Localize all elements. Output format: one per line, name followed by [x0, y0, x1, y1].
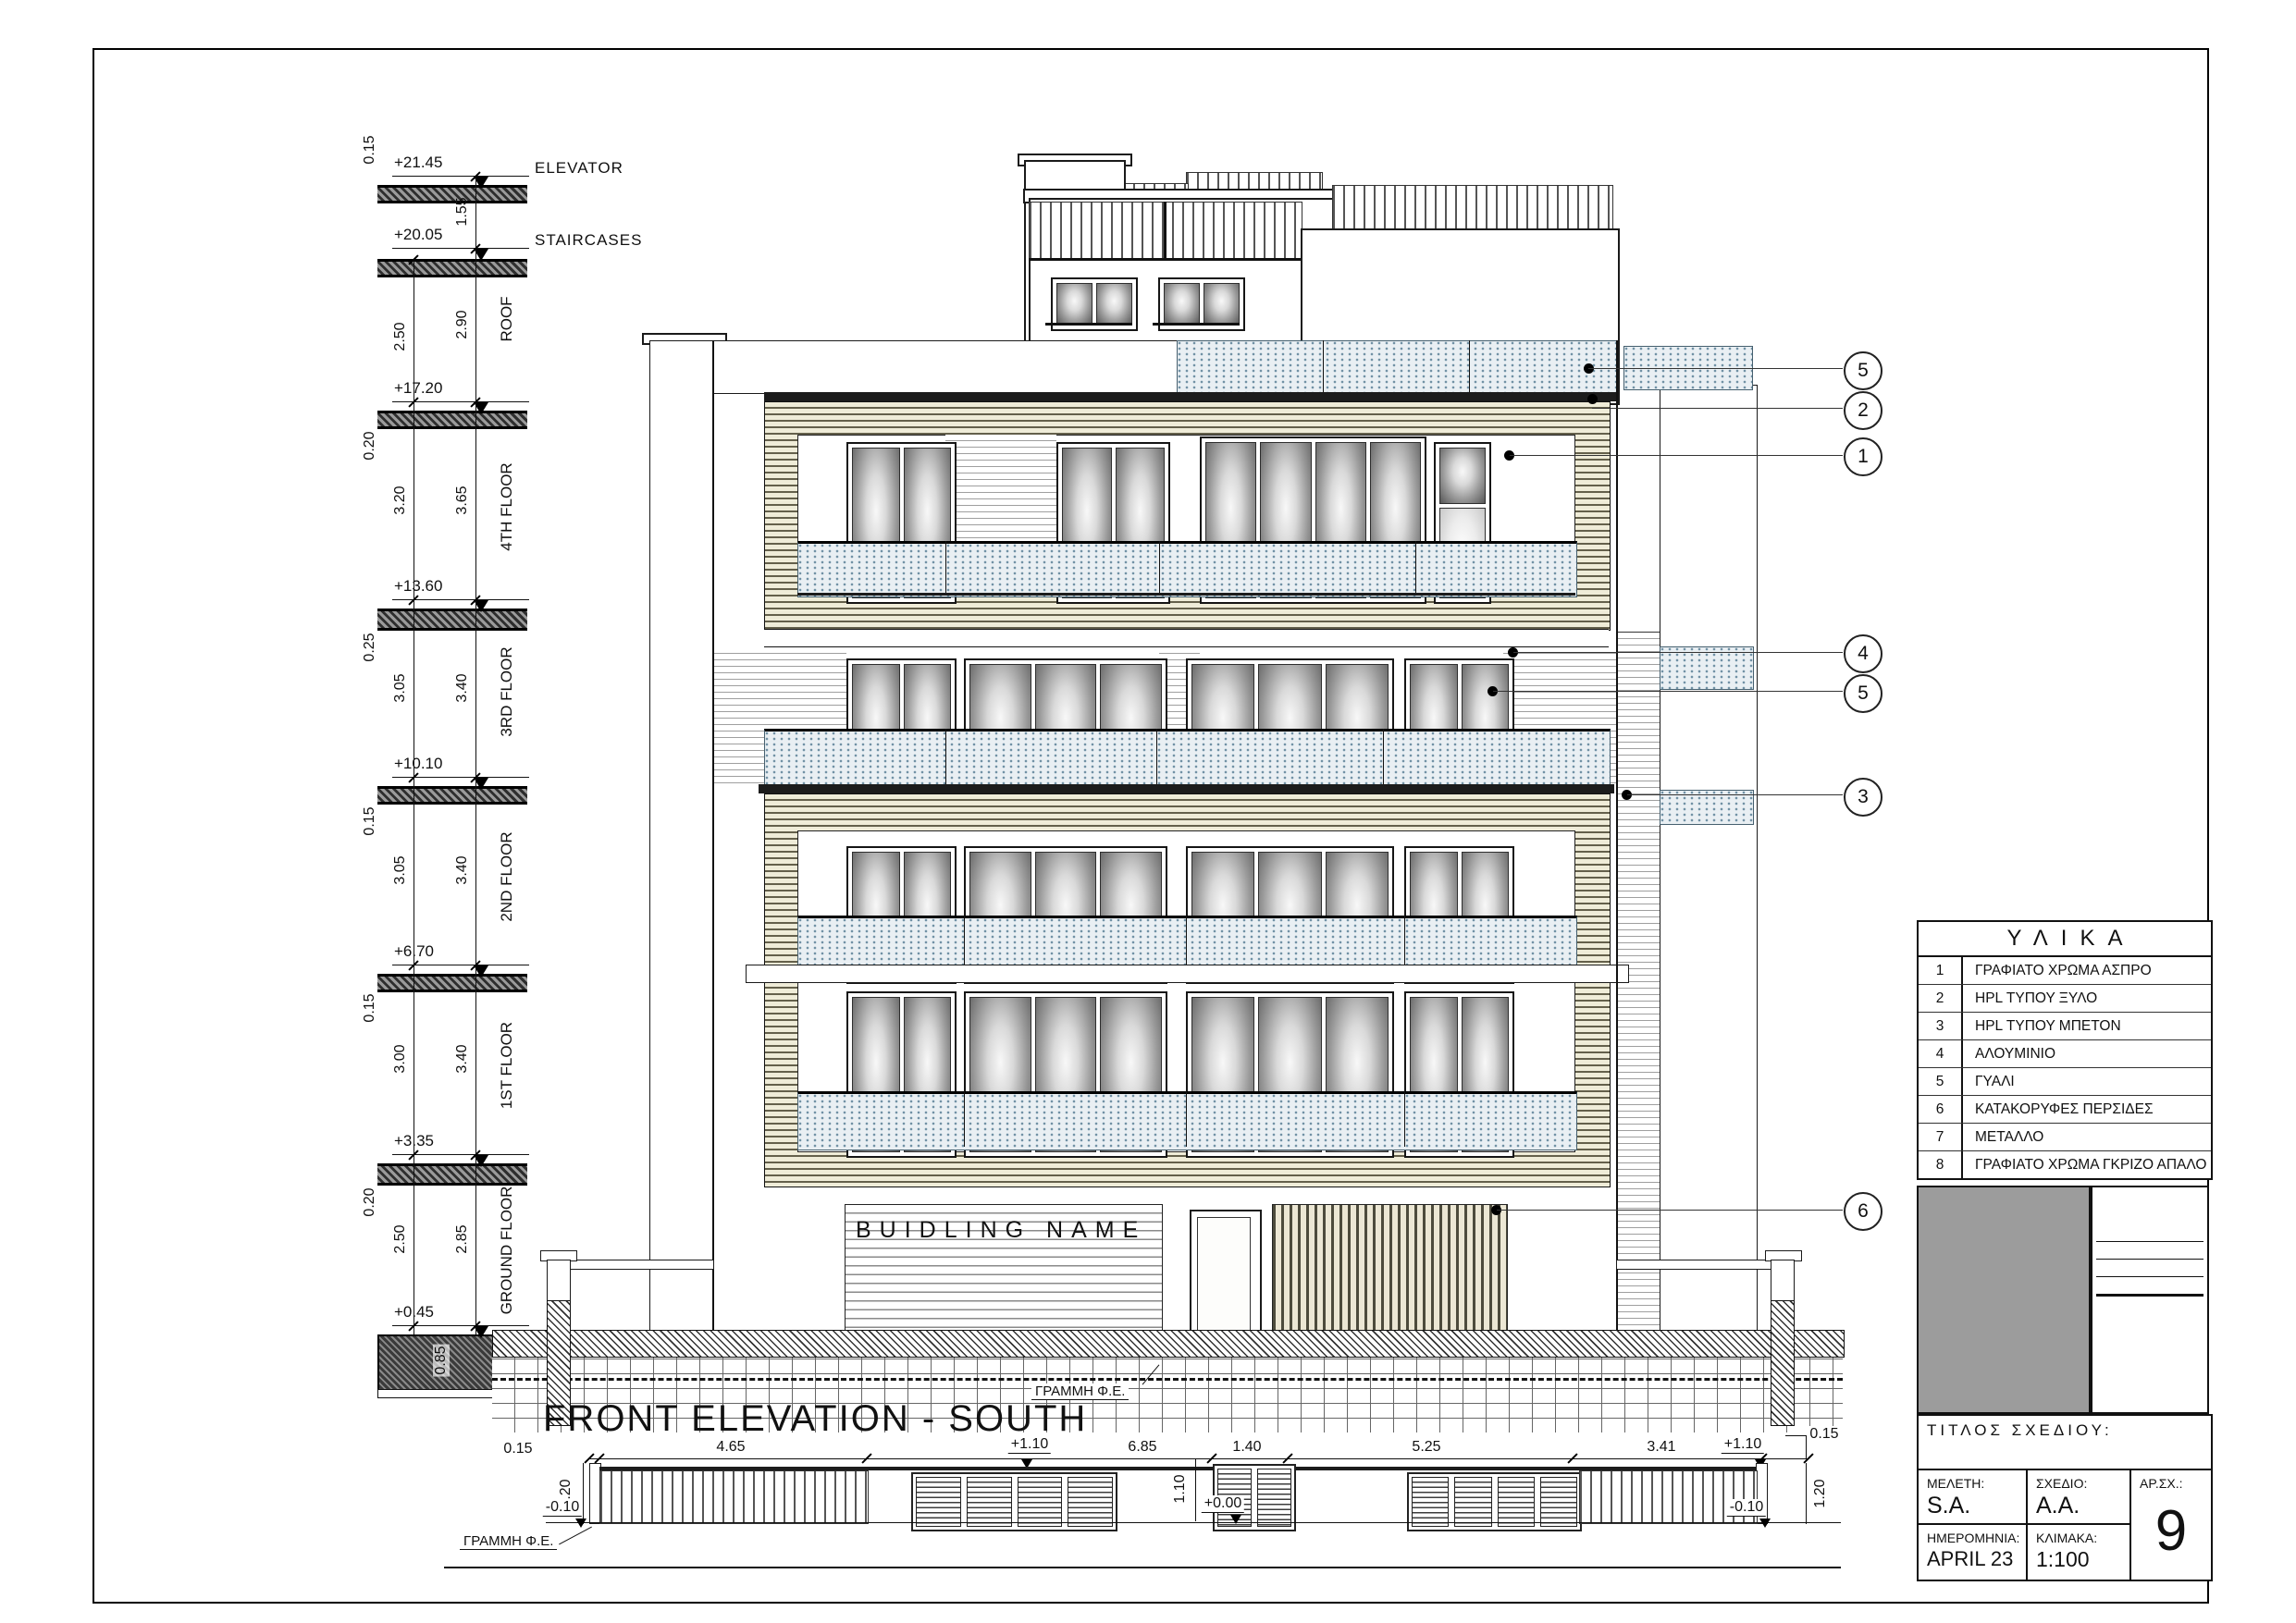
signature-line [2096, 1294, 2203, 1297]
material-row: 4ΑΛΟΥΜΙΝΙΟ [1919, 1040, 2211, 1068]
titleblock-date-cell: ΗΜΕΡΟΜΗΝΙΑ: APRIL 23 [1917, 1523, 2030, 1581]
callout-number: 3 [1858, 786, 1869, 808]
dim-outer-2: 3.65 [454, 486, 471, 514]
balustrade-post [1383, 729, 1384, 784]
slab-edge-4th [797, 593, 1575, 596]
slab-dim-ground: 0.85 [433, 1344, 450, 1376]
titleblock-scale-cell: ΚΛΙΜΑΚΑ: 1:100 [2026, 1523, 2133, 1581]
study-value: S.A. [1919, 1491, 2028, 1519]
callout-leader [1497, 1210, 1843, 1211]
louver-panel [1068, 1477, 1113, 1527]
balustrade-1st [797, 1091, 1577, 1150]
callout-number: 2 [1858, 400, 1869, 422]
window-pane [1164, 283, 1200, 326]
callout-leader [1510, 455, 1843, 456]
material-row: 2HPL ΤΥΠΟΥ ΞΥΛΟ [1919, 985, 2211, 1013]
level-name-roof: ROOF [498, 296, 516, 341]
slab-roof [377, 411, 527, 429]
detail-dim-0-15-right: 0.15 [1807, 1426, 1841, 1443]
material-label: ΚΑΤΑΚΟΡΥΦΕΣ ΠΕΡΣΙΔΕΣ [1963, 1101, 2154, 1118]
balcony-slab-6-70 [746, 965, 1629, 983]
detail-vdim-right-label: 1.20 [1812, 1479, 1829, 1507]
callout-number: 5 [1858, 360, 1869, 382]
material-label: ΓΥΑΛΙ [1963, 1074, 2015, 1090]
right-neighbor-wall [1660, 385, 1758, 1352]
detail-dim-line [589, 1458, 1808, 1459]
dim-outer-4: 3.40 [454, 855, 471, 884]
titleblock-logo [1917, 1186, 2091, 1414]
facade-right-edge [1616, 340, 1618, 1350]
slab-dim-roof: 0.20 [362, 431, 378, 460]
material-row: 8ΓΡΑΦΙΑΤΟ ΧΡΩΜΑ ΓΚΡΙΖΟ ΑΠΑΛΟ [1919, 1151, 2211, 1178]
slab-dim-3rd: 0.15 [362, 806, 378, 835]
detail-level-plus110-b: +1.10 [1722, 1436, 1764, 1454]
callout-leader [1493, 691, 1843, 692]
louver-panel [1018, 1477, 1063, 1527]
louver-panel [1257, 1469, 1291, 1527]
titleblock-sheet-cell: ΑΡ.ΣΧ.: 9 [2129, 1469, 2213, 1581]
signature-line [2096, 1276, 2203, 1277]
window-pane [1056, 283, 1092, 326]
building-name-sign: BUIDLING NAME [856, 1217, 1152, 1244]
level-name-2nd: 2ND FLOOR [498, 831, 516, 921]
roof-railing-post [1164, 202, 1167, 259]
material-row: 3HPL ΤΥΠΟΥ ΜΠΕΤΟΝ [1919, 1013, 2211, 1040]
slab-elevator [377, 185, 527, 203]
drawing-title-label: ΤΙΤΛΟΣ ΣΧΕΔΙΟΥ: [1919, 1416, 2211, 1440]
balustrade-3rd [764, 729, 1611, 788]
detail-level-minus010-a: -0.10 [543, 1499, 582, 1517]
detail-dim-6-85: 6.85 [1125, 1439, 1159, 1456]
elevation-title: FRONT ELEVATION - SOUTH [543, 1398, 1087, 1440]
balustrade-post [1159, 541, 1160, 594]
detail-ground-line [546, 1522, 1841, 1523]
callout-number: 4 [1858, 643, 1869, 665]
material-num: 7 [1919, 1124, 1963, 1150]
callout-leader [1588, 368, 1843, 369]
level-name-ground: GROUND FLOOR [498, 1187, 516, 1315]
louver-panel [916, 1477, 961, 1527]
canopy-glass-divider [1323, 340, 1324, 392]
detail-baseline [444, 1567, 1841, 1568]
callout-number: 6 [1858, 1200, 1869, 1223]
callout-leader [1592, 408, 1843, 409]
detail-slat-fence-left [599, 1470, 869, 1524]
material-label: HPL ΤΥΠΟΥ ΜΠΕΤΟΝ [1963, 1018, 2121, 1035]
dim-inner-4: 3.00 [392, 1044, 409, 1073]
louver-panel [1412, 1477, 1449, 1527]
plot-line-dashed [492, 1378, 1843, 1381]
level-name-staircases: STAIRCASES [535, 231, 642, 250]
dim-outer-5: 3.40 [454, 1044, 471, 1073]
roof-railing-bottom-rail [1029, 258, 1301, 261]
sheet-number: 9 [2131, 1498, 2211, 1564]
balustrade-4th [797, 541, 1577, 597]
material-row: 7ΜΕΤΑΛΛΟ [1919, 1124, 2211, 1151]
detail-level-plus110-a: +1.10 [1008, 1436, 1051, 1454]
louver-panel [1498, 1477, 1535, 1527]
right-fence-post [1771, 1260, 1795, 1302]
date-value: APRIL 23 [1919, 1545, 2028, 1571]
slab-band-13-60 [764, 629, 1609, 647]
date-label: ΗΜΕΡΟΜΗΝΙΑ: [1919, 1525, 2028, 1545]
roof-right-railing [1332, 185, 1613, 230]
level-elev-roof: +17.20 [394, 379, 442, 398]
detail-level-marker [1759, 1518, 1771, 1528]
detail-level-minus010-b: -0.10 [1727, 1499, 1766, 1517]
signature-line [2096, 1259, 2203, 1260]
detail-level-marker [1230, 1515, 1241, 1524]
scale-label: ΚΛΙΜΑΚΑ: [2028, 1525, 2131, 1545]
study-label: ΜΕΛΕΤΗ: [1919, 1470, 2028, 1491]
material-num: 5 [1919, 1068, 1963, 1095]
dim-outer-6: 2.85 [454, 1224, 471, 1253]
slab-4th [377, 609, 527, 631]
dim-outer-3: 3.40 [454, 673, 471, 702]
window-pane [1096, 283, 1132, 326]
materials-title: ΥΛΙΚΑ [1919, 922, 2211, 957]
wall-4th-striped-section [945, 435, 1056, 539]
louver-panel [1540, 1477, 1577, 1527]
material-label: ΜΕΤΑΛΛΟ [1963, 1129, 2043, 1146]
drawn-value: A.A. [2028, 1491, 2131, 1519]
callout-6: 6 [1844, 1192, 1882, 1231]
right-fence-rail [1616, 1260, 1784, 1270]
callout-number: 1 [1858, 446, 1869, 468]
callout-1: 1 [1844, 437, 1882, 476]
window-pane [1204, 283, 1240, 326]
balustrade-post [1156, 729, 1157, 784]
level-name-1st: 1ST FLOOR [498, 1022, 516, 1109]
canopy-glass [1177, 340, 1618, 394]
material-num: 6 [1919, 1096, 1963, 1123]
callout-2: 2 [1844, 391, 1882, 430]
level-line-staircases [392, 248, 529, 249]
detail-bracket [1785, 1435, 1806, 1436]
callout-5a: 5 [1844, 351, 1882, 390]
callout-5b: 5 [1844, 674, 1882, 713]
material-label: HPL ΤΥΠΟΥ ΞΥΛΟ [1963, 990, 2097, 1007]
ground-hatch-band [492, 1330, 1845, 1358]
detail-level-marker [575, 1518, 586, 1528]
dim-inner-3: 3.05 [392, 855, 409, 884]
callout-3: 3 [1844, 778, 1882, 817]
balustrade-post [1186, 1091, 1187, 1147]
materials-table: ΥΛΙΚΑ 1ΓΡΑΦΙΑΤΟ ΧΡΩΜΑ ΑΣΠΡΟ 2HPL ΤΥΠΟΥ Ξ… [1917, 920, 2213, 1180]
detail-vdim-left [583, 1463, 584, 1524]
callout-leader [1627, 794, 1843, 795]
detail-dim-5-25: 5.25 [1409, 1439, 1443, 1456]
detail-vdim-right [1806, 1463, 1807, 1524]
slab-1st [377, 1163, 527, 1186]
right-fence-post-footing [1771, 1300, 1795, 1426]
detail-dim-3-41: 3.41 [1644, 1439, 1678, 1456]
detail-level-zero: +0.00 [1202, 1495, 1244, 1513]
left-fence-post [547, 1260, 571, 1302]
bulkhead-window-sill-left [1045, 323, 1132, 326]
slab-edge-10-10 [759, 784, 1614, 793]
louver-panel [1454, 1477, 1491, 1527]
material-label: ΓΡΑΦΙΑΤΟ ΧΡΩΜΑ ΓΚΡΙΖΟ ΑΠΑΛΟ [1963, 1157, 2206, 1174]
detail-ground-line-label: ΓΡΑΜΜΗ Φ.Ε. [460, 1533, 557, 1550]
material-num: 8 [1919, 1151, 1963, 1178]
window-pane [1439, 448, 1486, 504]
detail-vdim-mid-label: 1.10 [1172, 1474, 1189, 1503]
canopy-fascia [764, 392, 1616, 401]
slab-dim-4th: 0.25 [362, 633, 378, 661]
titleblock-drawn-cell: ΣΧΕΔΙΟ: A.A. [2026, 1469, 2133, 1527]
level-line-elevator [392, 176, 529, 177]
dim-inner-5: 2.50 [392, 1224, 409, 1253]
detail-bracket-v [1806, 1435, 1807, 1459]
level-name-4th: 4TH FLOOR [498, 462, 516, 550]
material-num: 2 [1919, 985, 1963, 1012]
detail-dim-4-65: 4.65 [713, 1439, 747, 1456]
dim-inner-1: 3.20 [392, 486, 409, 514]
slab-staircases [377, 259, 527, 277]
callout-number: 5 [1858, 682, 1869, 705]
material-label: ΓΡΑΦΙΑΤΟ ΧΡΩΜΑ ΑΣΠΡΟ [1963, 963, 2152, 979]
slab-2nd [377, 974, 527, 992]
canopy-glass-divider [1469, 340, 1470, 392]
level-elev-3rd: +10.10 [394, 755, 442, 773]
material-row: 5ΓΥΑΛΙ [1919, 1068, 2211, 1096]
material-row: 6ΚΑΤΑΚΟΡΥΦΕΣ ΠΕΡΣΙΔΕΣ [1919, 1096, 2211, 1124]
dim-inner-0: 2.50 [392, 322, 409, 350]
slab-3rd [377, 786, 527, 805]
balustrade-post [964, 1091, 965, 1147]
balustrade-post [1404, 1091, 1405, 1147]
callout-leader [1513, 652, 1843, 653]
callout-anchor-2 [1587, 394, 1598, 404]
slab-dim-1st: 0.20 [362, 1187, 378, 1216]
dim-inner-2: 3.05 [392, 673, 409, 702]
dim-outer-0: 1.55 [454, 197, 471, 226]
level-name-elevator: ELEVATOR [535, 159, 623, 178]
callout-4: 4 [1844, 634, 1882, 673]
material-num: 1 [1919, 957, 1963, 984]
dim-chain-inner [414, 259, 414, 1334]
level-name-3rd: 3RD FLOOR [498, 646, 516, 736]
canopy-parapet [712, 340, 1179, 394]
titleblock-title-row: ΤΙΤΛΟΣ ΣΧΕΔΙΟΥ: [1917, 1414, 2213, 1472]
sheet-label: ΑΡ.ΣΧ.: [2131, 1470, 2211, 1491]
right-neighbor-glass-mid [1660, 646, 1754, 690]
slab-dim-2nd: 0.15 [362, 993, 378, 1022]
bulkhead-window-sill-right [1153, 323, 1240, 326]
drawn-label: ΣΧΕΔΙΟ: [2028, 1470, 2131, 1491]
slab-dim-elevator: 0.15 [362, 135, 378, 164]
material-num: 3 [1919, 1013, 1963, 1039]
left-neighbor-wall [649, 340, 714, 1352]
detail-dim-1-40: 1.40 [1229, 1439, 1264, 1456]
detail-vdim-mid [1195, 1458, 1196, 1521]
louver-panel [967, 1477, 1012, 1527]
dim-chain-outer [475, 176, 476, 1334]
titleblock-study-cell: ΜΕΛΕΤΗ: S.A. [1917, 1469, 2030, 1527]
level-elev-staircases: +20.05 [394, 226, 442, 244]
level-elev-elevator: +21.45 [394, 154, 442, 172]
scale-value: 1:100 [2028, 1545, 2131, 1572]
balustrade-post [945, 729, 946, 784]
material-row: 1ΓΡΑΦΙΑΤΟ ΧΡΩΜΑ ΑΣΠΡΟ [1919, 957, 2211, 985]
signature-line [2096, 1241, 2203, 1242]
drawing-sheet: +21.45 ELEVATOR +20.05 STAIRCASES +17.20… [0, 0, 2296, 1623]
entrance-door-leaf [1197, 1217, 1251, 1343]
facade-left-edge [712, 340, 714, 1350]
material-label: ΑΛΟΥΜΙΝΙΟ [1963, 1046, 2055, 1063]
titleblock-signature-panel [2091, 1186, 2209, 1414]
balustrade-post [945, 541, 946, 594]
level-elev-4th: +13.60 [394, 577, 442, 596]
detail-dim-0-15-left: 0.15 [500, 1441, 535, 1457]
dim-outer-1: 2.90 [454, 310, 471, 338]
material-num: 4 [1919, 1040, 1963, 1067]
balustrade-post [1415, 541, 1416, 594]
